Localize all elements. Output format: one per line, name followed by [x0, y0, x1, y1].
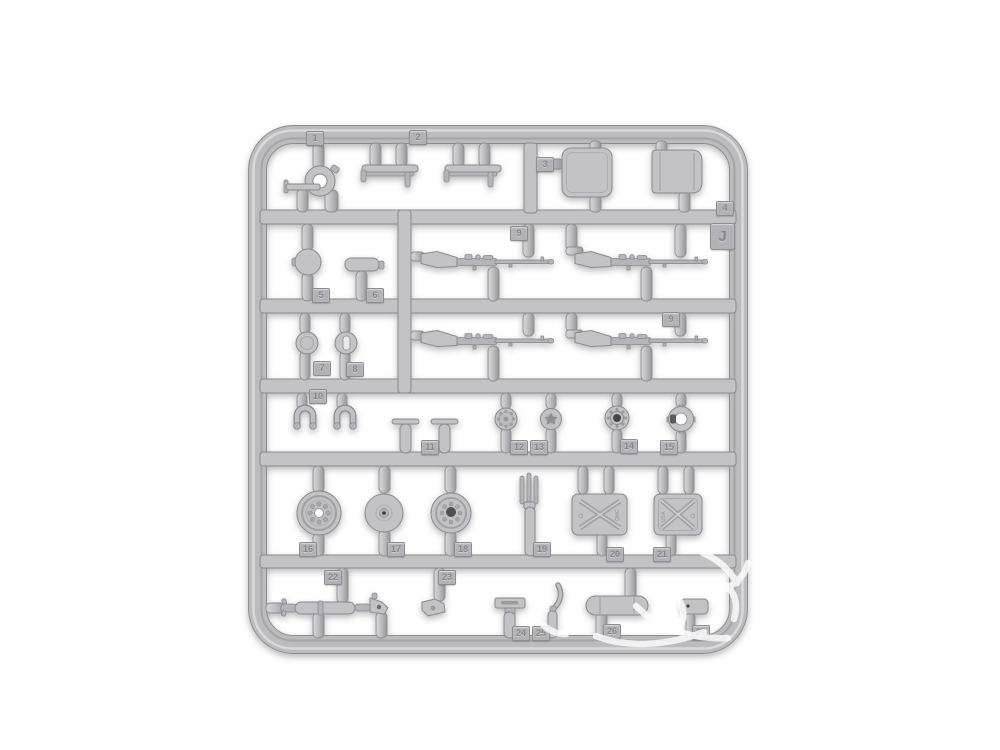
part-tag-19: 19 — [533, 542, 551, 557]
part-tag-20: 20 — [606, 547, 624, 562]
part-tag-13: 13 — [530, 440, 548, 455]
part-tag-24: 24 — [512, 626, 530, 641]
part-tag-27: 27 — [692, 625, 710, 640]
part-tag-3: 3 — [536, 157, 554, 172]
part-tag-25: 25 — [532, 626, 550, 641]
part-tag-9-bottom: 9 — [662, 312, 680, 327]
part-tag-23: 23 — [438, 570, 456, 585]
part-tag-15: 15 — [660, 440, 678, 455]
part-tag-16: 16 — [299, 542, 317, 557]
part-tag-26: 26 — [603, 624, 621, 639]
part-tag-8: 8 — [346, 362, 364, 377]
part-tag-11: 11 — [421, 440, 439, 455]
part-number-tags: 1 2 3 4 J 5 6 9 7 8 9 10 11 12 13 14 15 … — [0, 0, 1000, 750]
part-tag-21: 21 — [653, 547, 671, 562]
part-tag-14: 14 — [620, 439, 638, 454]
part-tag-18: 18 — [454, 542, 472, 557]
part-tag-5: 5 — [312, 288, 330, 303]
part-tag-2: 2 — [409, 130, 427, 145]
part-tag-10: 10 — [309, 389, 327, 404]
part-tag-12: 12 — [510, 440, 528, 455]
part-tag-6: 6 — [366, 288, 384, 303]
part-tag-7: 7 — [313, 361, 331, 376]
part-tag-9-top: 9 — [510, 226, 528, 241]
part-tag-1: 1 — [306, 131, 324, 146]
part-tag-4: 4 — [716, 201, 734, 216]
part-tag-22: 22 — [324, 570, 342, 585]
sprue-photo: G QMC USA G — [0, 0, 1000, 750]
part-tag-17: 17 — [387, 542, 405, 557]
sprue-letter-tag: J — [710, 223, 735, 250]
